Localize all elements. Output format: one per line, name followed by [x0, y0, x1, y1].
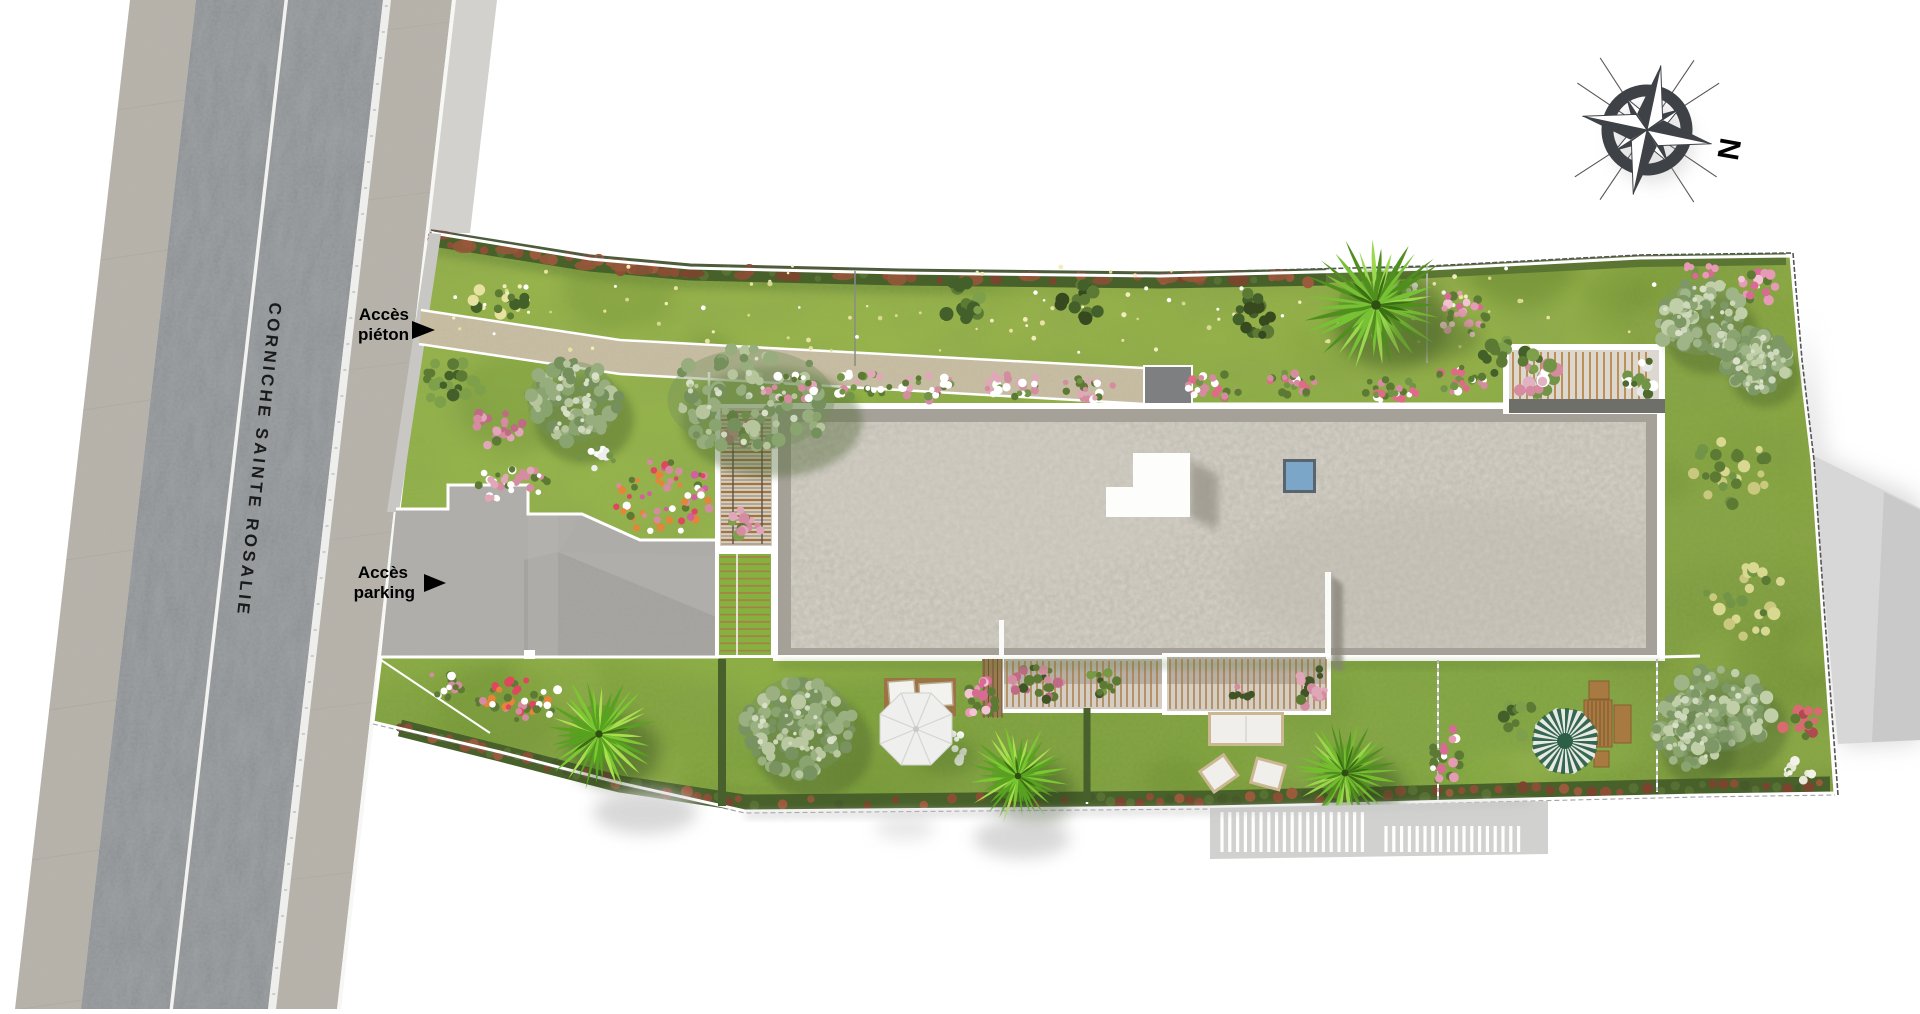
svg-text:piéton: piéton: [358, 325, 409, 344]
svg-text:Accès: Accès: [358, 563, 408, 582]
svg-text:parking: parking: [354, 583, 415, 602]
svg-text:Accès: Accès: [359, 305, 409, 324]
